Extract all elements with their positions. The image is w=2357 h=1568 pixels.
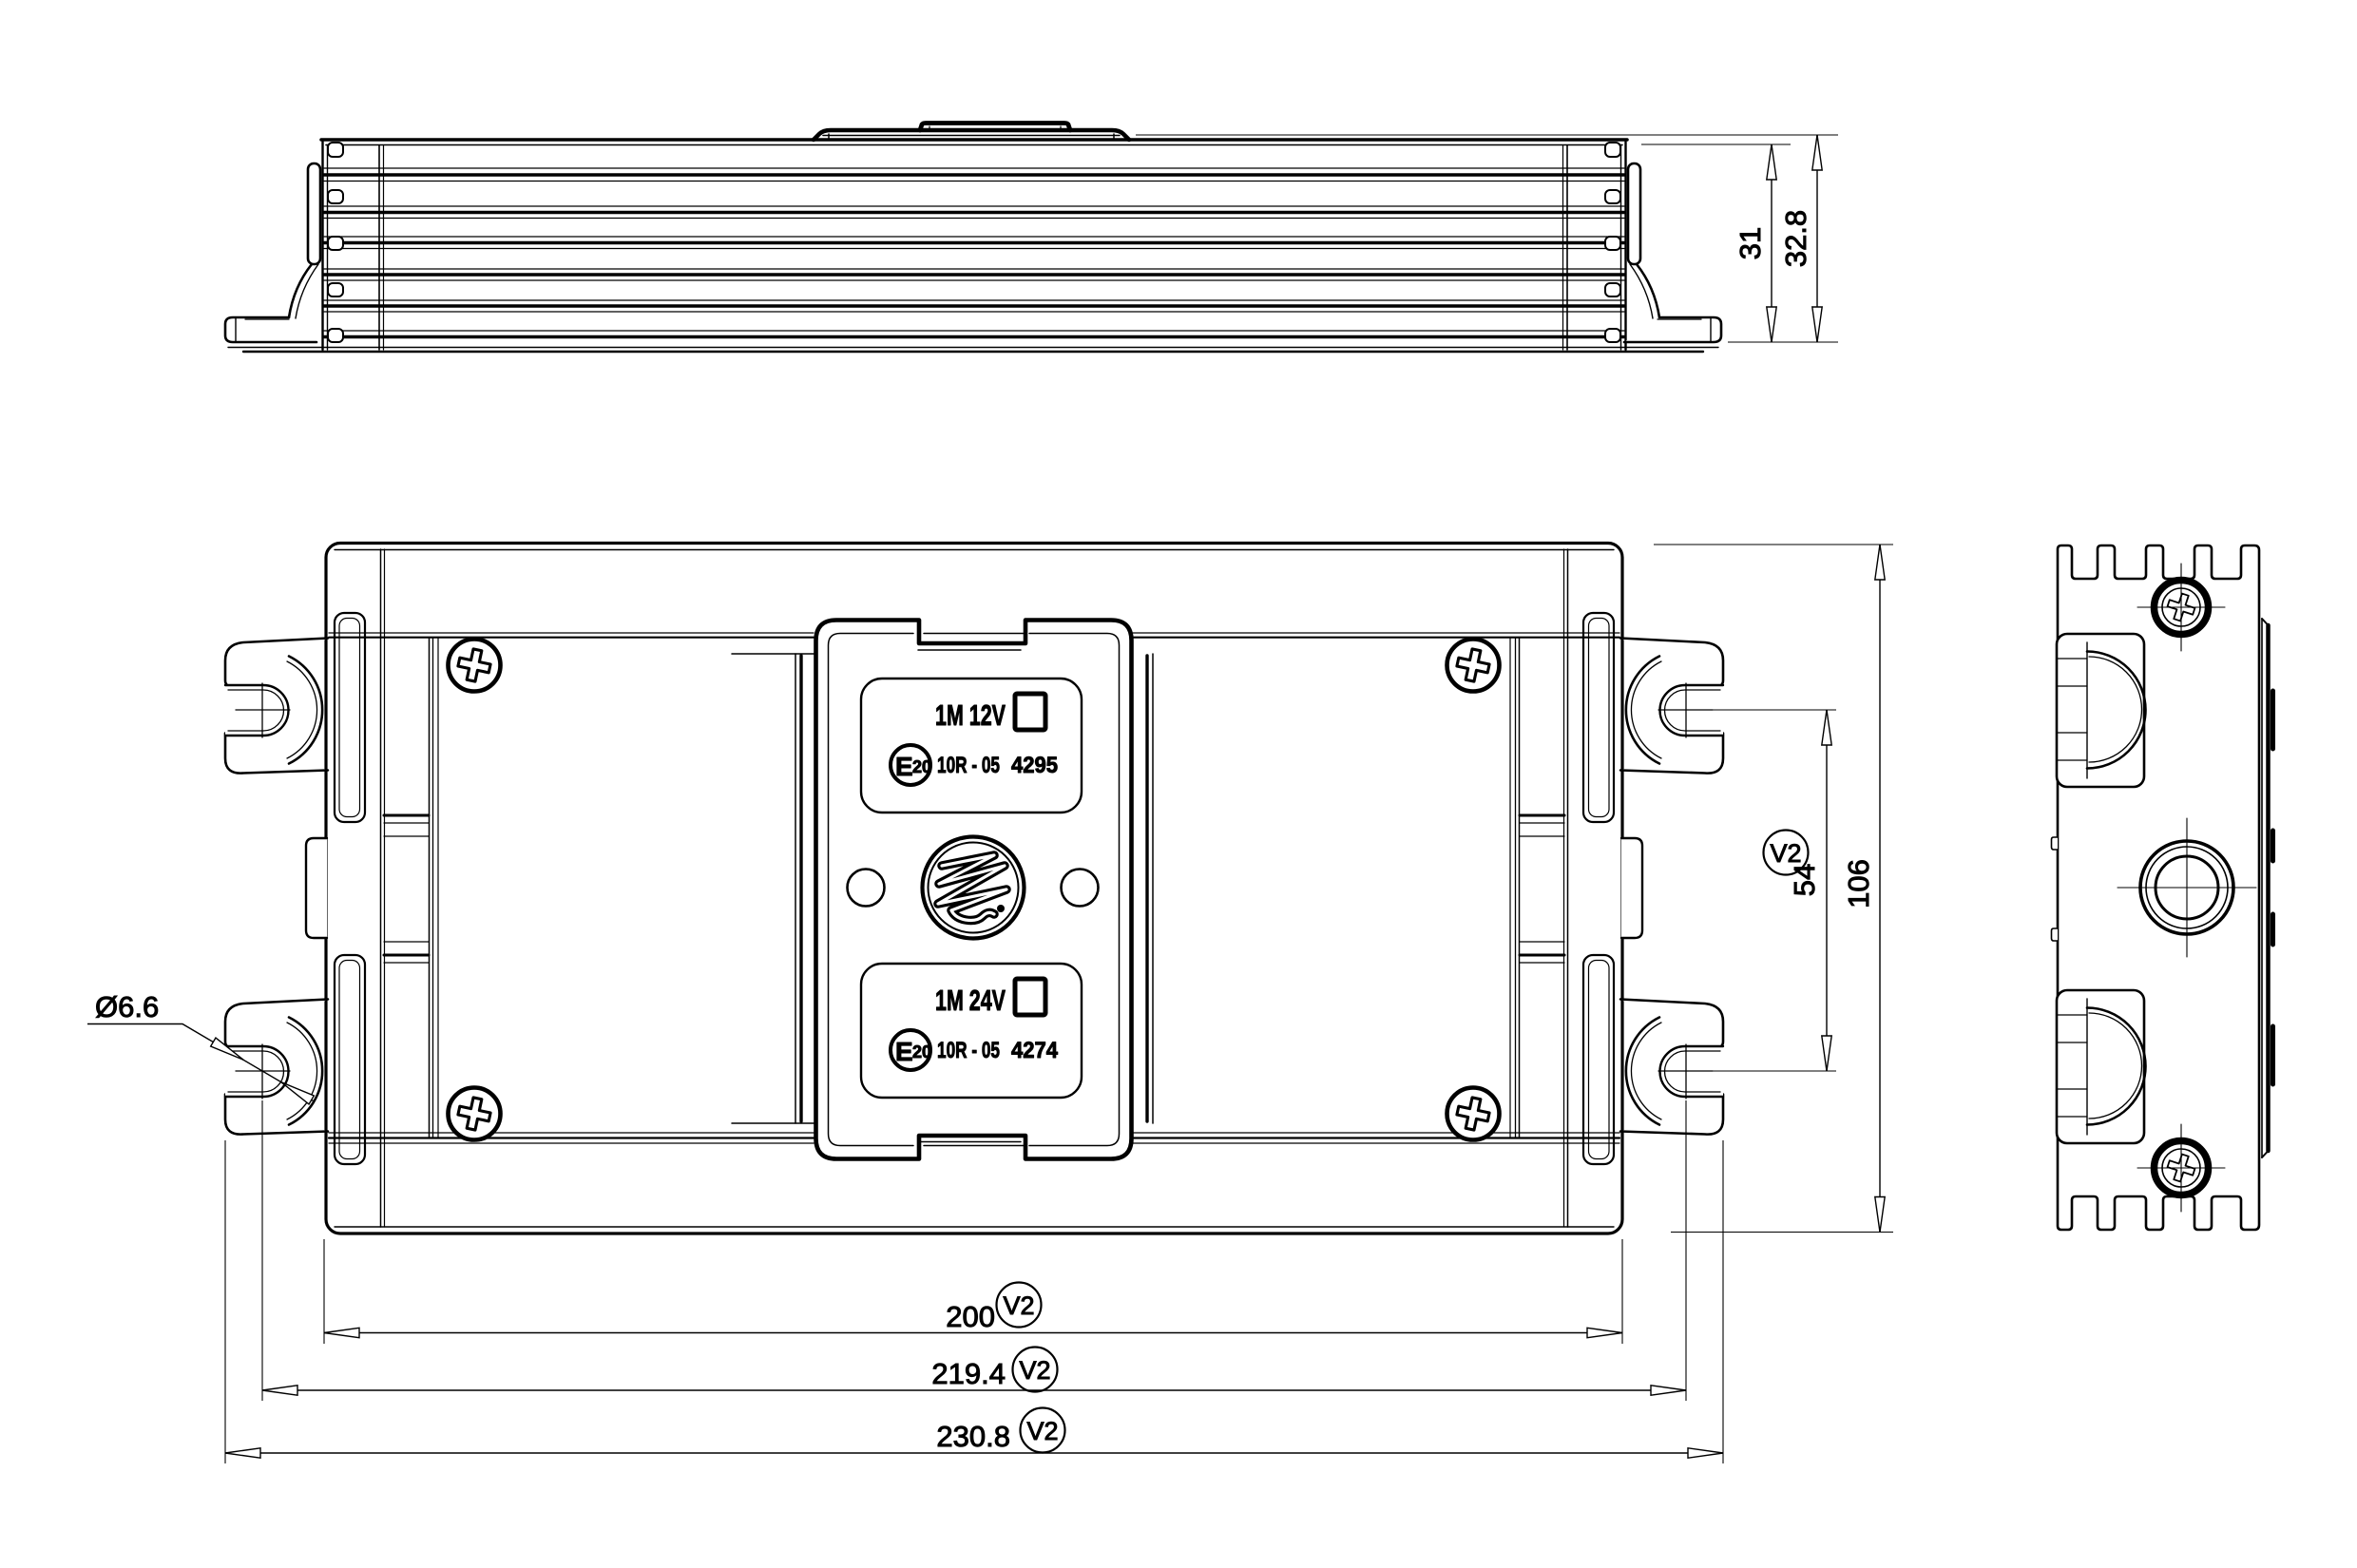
svg-text:E: E (895, 1037, 913, 1066)
svg-text:V2: V2 (1003, 1291, 1034, 1320)
svg-text:32.8: 32.8 (1779, 210, 1812, 267)
svg-text:10R - 05: 10R - 05 (937, 753, 1000, 778)
svg-text:219.4: 219.4 (931, 1357, 1006, 1390)
svg-text:E: E (895, 752, 913, 781)
svg-text:V2: V2 (1019, 1356, 1050, 1385)
svg-text:200: 200 (946, 1300, 995, 1333)
svg-text:V2: V2 (1770, 839, 1801, 868)
svg-text:4295: 4295 (1011, 753, 1058, 778)
svg-text:54: 54 (1788, 864, 1821, 896)
svg-text:Ø6.6: Ø6.6 (95, 990, 159, 1023)
svg-text:10R - 05: 10R - 05 (937, 1038, 1000, 1063)
svg-text:20: 20 (912, 757, 931, 776)
svg-text:230.8: 230.8 (936, 1420, 1010, 1453)
svg-text:1M 24V: 1M 24V (935, 984, 1006, 1017)
svg-text:V2: V2 (1026, 1417, 1058, 1445)
svg-text:4274: 4274 (1011, 1038, 1059, 1063)
svg-text:31: 31 (1734, 227, 1767, 259)
svg-text:1M 12V: 1M 12V (935, 698, 1006, 732)
svg-text:20: 20 (912, 1042, 931, 1061)
svg-text:106: 106 (1842, 859, 1875, 908)
